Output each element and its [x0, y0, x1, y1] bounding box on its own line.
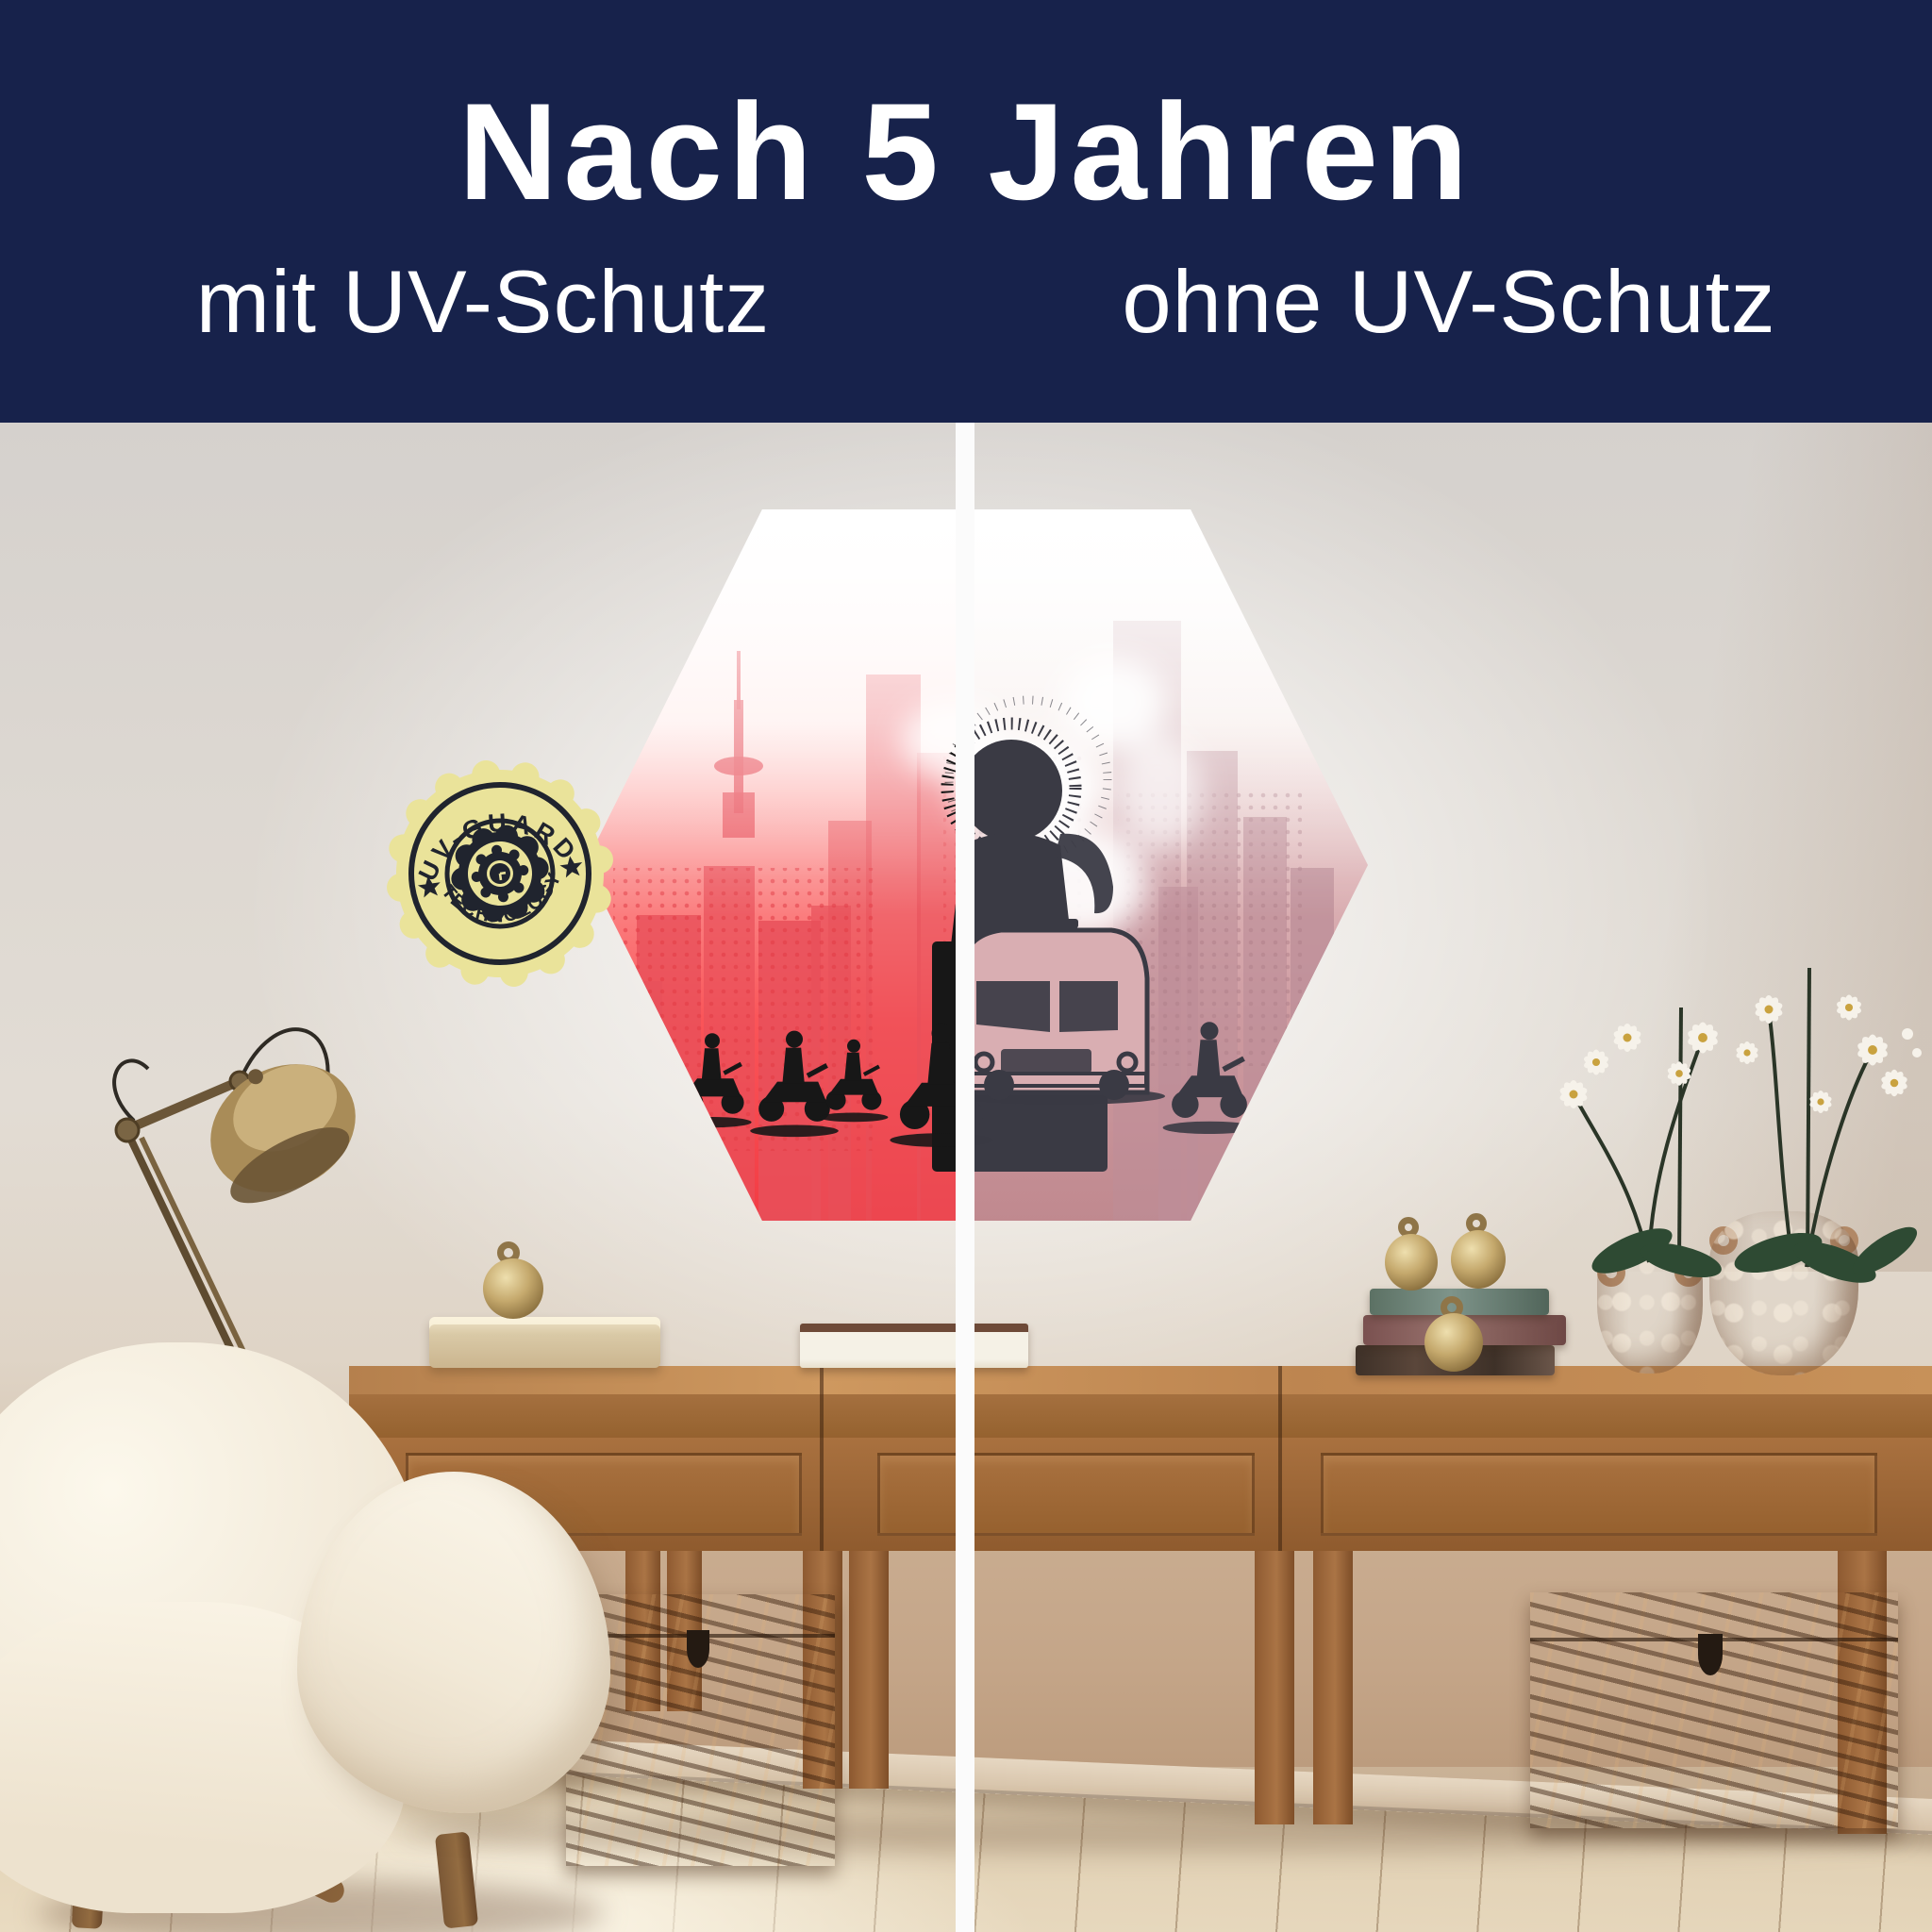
- table-leg: [1255, 1551, 1294, 1824]
- table-section-seam: [820, 1366, 824, 1551]
- lamp-shade: [184, 1035, 378, 1218]
- brass-ball: [1424, 1313, 1483, 1372]
- drawer-front: [1321, 1453, 1877, 1536]
- table-leg: [849, 1551, 889, 1789]
- hex-artwork-faded-half: [974, 509, 1368, 1221]
- table-section-seam: [1278, 1366, 1282, 1551]
- orchid-plant: [1538, 951, 1932, 1385]
- wood-tray: [429, 1317, 660, 1368]
- hex-artwork-faded-svg: [974, 509, 1368, 1221]
- orchid-leaves: [1586, 1219, 1924, 1291]
- uv-guard-badge: UV-GUARD TECHNOLOGY: [383, 757, 617, 991]
- header-banner: Nach 5 Jahren mit UV-Schutz ohne UV-Schu…: [0, 0, 1932, 423]
- banner-labels: mit UV-Schutz ohne UV-Schutz: [0, 253, 1932, 375]
- comparison-divider: [956, 423, 974, 1932]
- orchid-flowers: [1558, 994, 1922, 1114]
- lamp-joint: [116, 1119, 139, 1141]
- label-with-uv: mit UV-Schutz: [0, 253, 966, 350]
- hex-artwork-vivid-half: [585, 509, 956, 1221]
- product-comparison-image: Nach 5 Jahren mit UV-Schutz ohne UV-Schu…: [0, 0, 1932, 1932]
- chest-leather-pull: [1698, 1634, 1723, 1675]
- brass-ball: [1385, 1234, 1438, 1291]
- wood-chest-right: [1530, 1592, 1898, 1828]
- brass-ball: [1451, 1230, 1506, 1289]
- book-flat: [800, 1324, 1028, 1368]
- chest-leather-pull: [687, 1630, 709, 1668]
- label-without-uv: ohne UV-Schutz: [966, 253, 1932, 350]
- hex-artwork-vivid-svg: [585, 509, 956, 1221]
- drawer-front: [877, 1453, 1255, 1536]
- table-leg: [1313, 1551, 1353, 1824]
- console-table-edge: [349, 1394, 1932, 1438]
- van-silhouette: [974, 919, 1165, 1105]
- banner-title: Nach 5 Jahren: [0, 79, 1932, 224]
- brass-bell: [483, 1258, 543, 1319]
- orchid-stems: [1574, 968, 1873, 1267]
